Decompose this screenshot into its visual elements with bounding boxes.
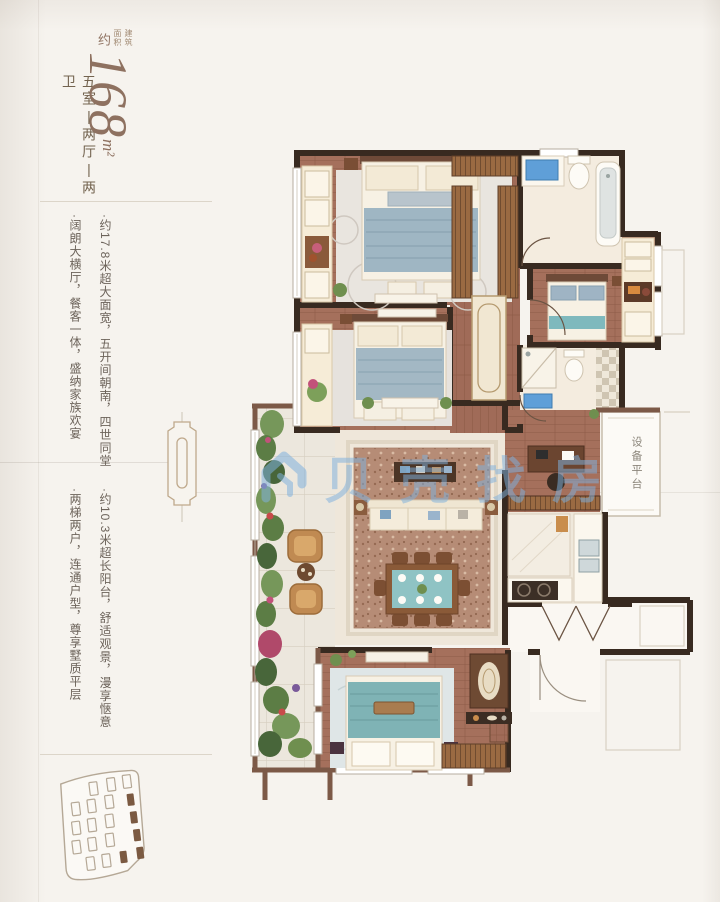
tv-console <box>378 309 436 317</box>
page-crease <box>0 462 182 463</box>
area-approx: 约 <box>94 33 113 46</box>
tv-console <box>366 652 428 662</box>
divider <box>40 754 212 755</box>
feature-group-2: ·约10.3米超长阳台，舒适观景，漫享惬意 ·两梯两户，连通户型，尊享墅质平层 <box>58 488 120 750</box>
area-value: 168m² <box>80 52 136 202</box>
kitchen-sink <box>579 540 599 556</box>
divider <box>40 201 212 202</box>
area-note: 建筑面积 <box>112 29 134 53</box>
tv-console <box>375 294 437 303</box>
wardrobe <box>442 744 506 768</box>
page-shading <box>0 0 720 30</box>
counter <box>574 514 602 602</box>
room-kitchen <box>508 514 602 602</box>
feature-line: ·约10.3米超长阳台，舒适观景，漫享惬意 <box>90 488 120 750</box>
plant-icon <box>333 283 347 297</box>
stove <box>512 581 558 600</box>
laundry-floor <box>596 345 622 410</box>
watermark-text: 贝壳找房 <box>324 441 628 513</box>
plant-icon <box>440 397 452 409</box>
feature-group-1: ·约17.8米超大面宽，五开间朝南，四世同堂 ·阔朗大横厅，餐客一体，盛纳家族欢… <box>58 214 120 476</box>
console-table <box>382 398 438 408</box>
brochure-page: 五室|两厅|两卫 建筑面积 约 168m² ·约17.8米超大面宽，五开间朝南，… <box>0 0 720 902</box>
feature-line: ·约17.8米超大面宽，五开间朝南，四世同堂 <box>90 214 120 476</box>
area-number: 168 <box>78 52 138 139</box>
runner-rug <box>472 296 506 400</box>
plant-icon <box>362 397 374 409</box>
entry-corridor-floor <box>510 604 690 652</box>
bed-blanket <box>356 348 444 400</box>
beike-logo-icon <box>258 450 308 504</box>
sink <box>524 394 552 408</box>
watermark: 贝壳找房 <box>258 441 628 513</box>
equipment-platform-label: 设备平台 <box>630 436 643 492</box>
toilet <box>565 359 583 381</box>
toilet <box>569 163 589 189</box>
foyer <box>466 654 512 724</box>
ornament-divider-icon <box>159 412 205 522</box>
sink <box>526 160 558 180</box>
feature-line: ·阔朗大横厅，餐客一体，盛纳家族欢宴 <box>60 214 90 476</box>
area-unit: m² <box>99 139 118 156</box>
plant-icon <box>330 654 342 666</box>
plant-icon <box>589 409 599 419</box>
feature-line: ·两梯两户，连通户型，尊享墅质平层 <box>60 488 90 750</box>
site-key-map <box>38 762 188 892</box>
